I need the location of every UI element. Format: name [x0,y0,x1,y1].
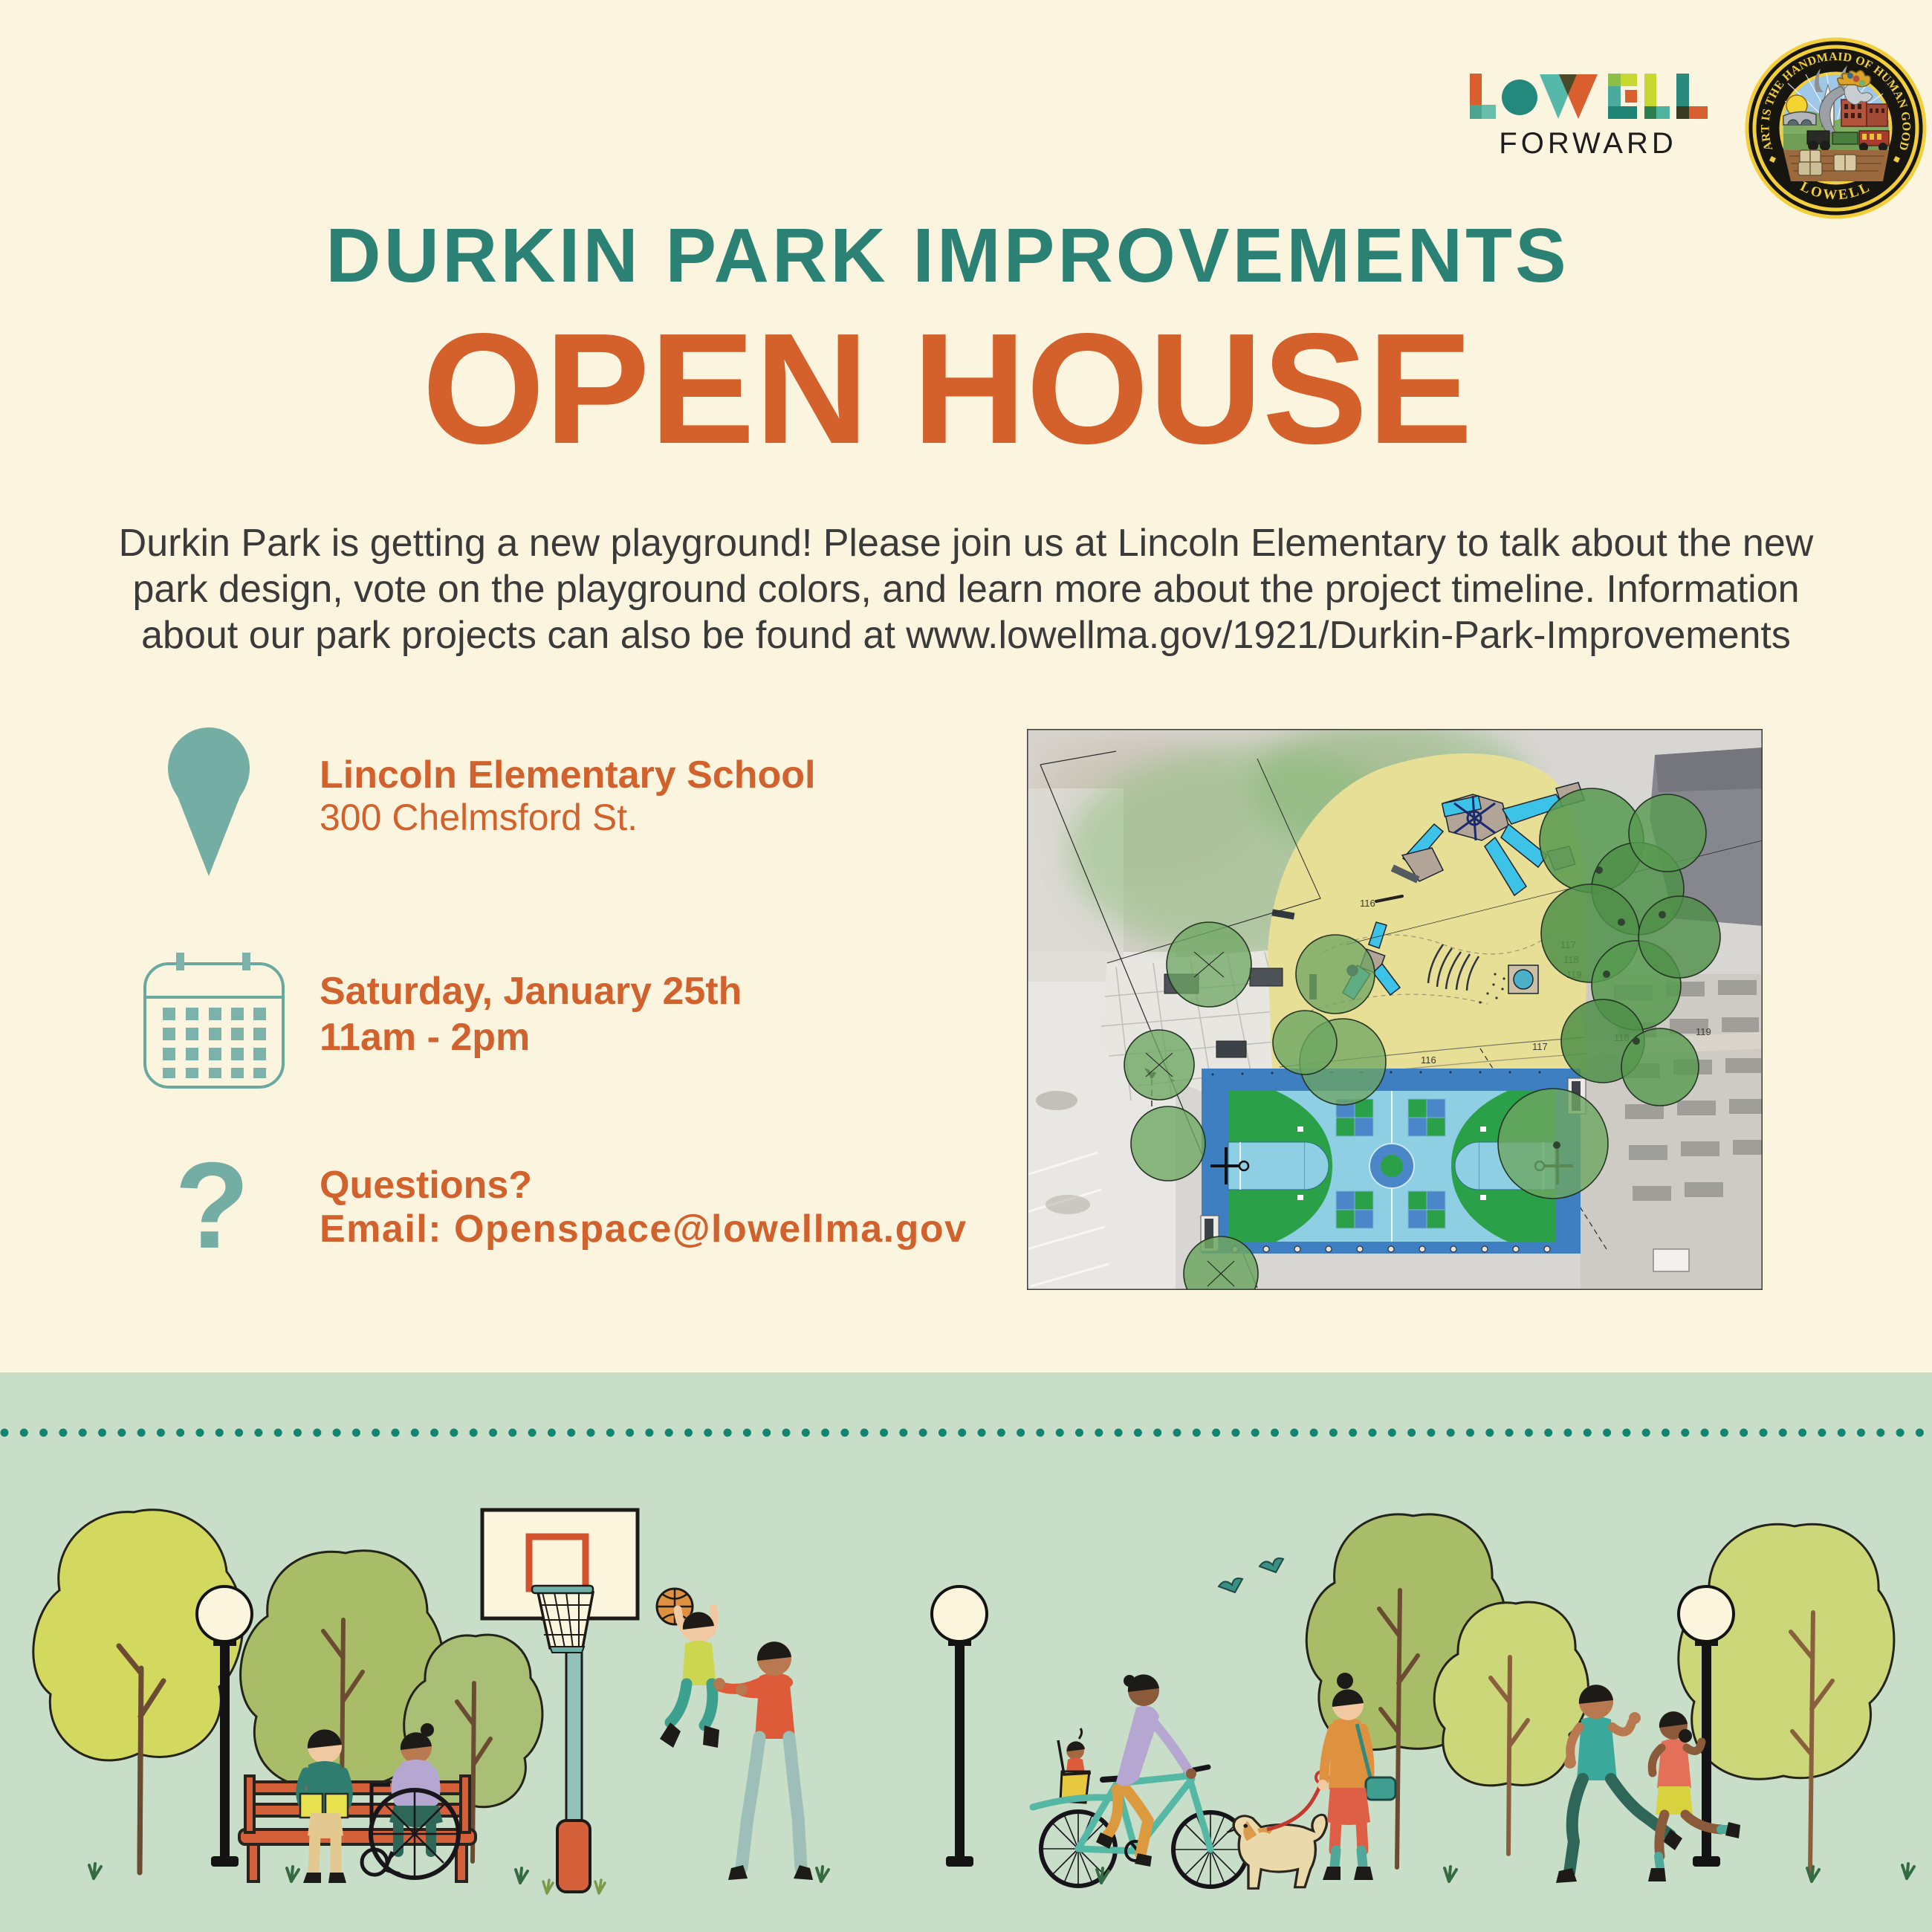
svg-text:117: 117 [1532,1041,1548,1052]
svg-text:119: 119 [1696,1026,1711,1037]
svg-text:116: 116 [1421,1054,1436,1066]
svg-text:116: 116 [1360,898,1375,909]
svg-text:FORWARD: FORWARD [1499,127,1676,160]
